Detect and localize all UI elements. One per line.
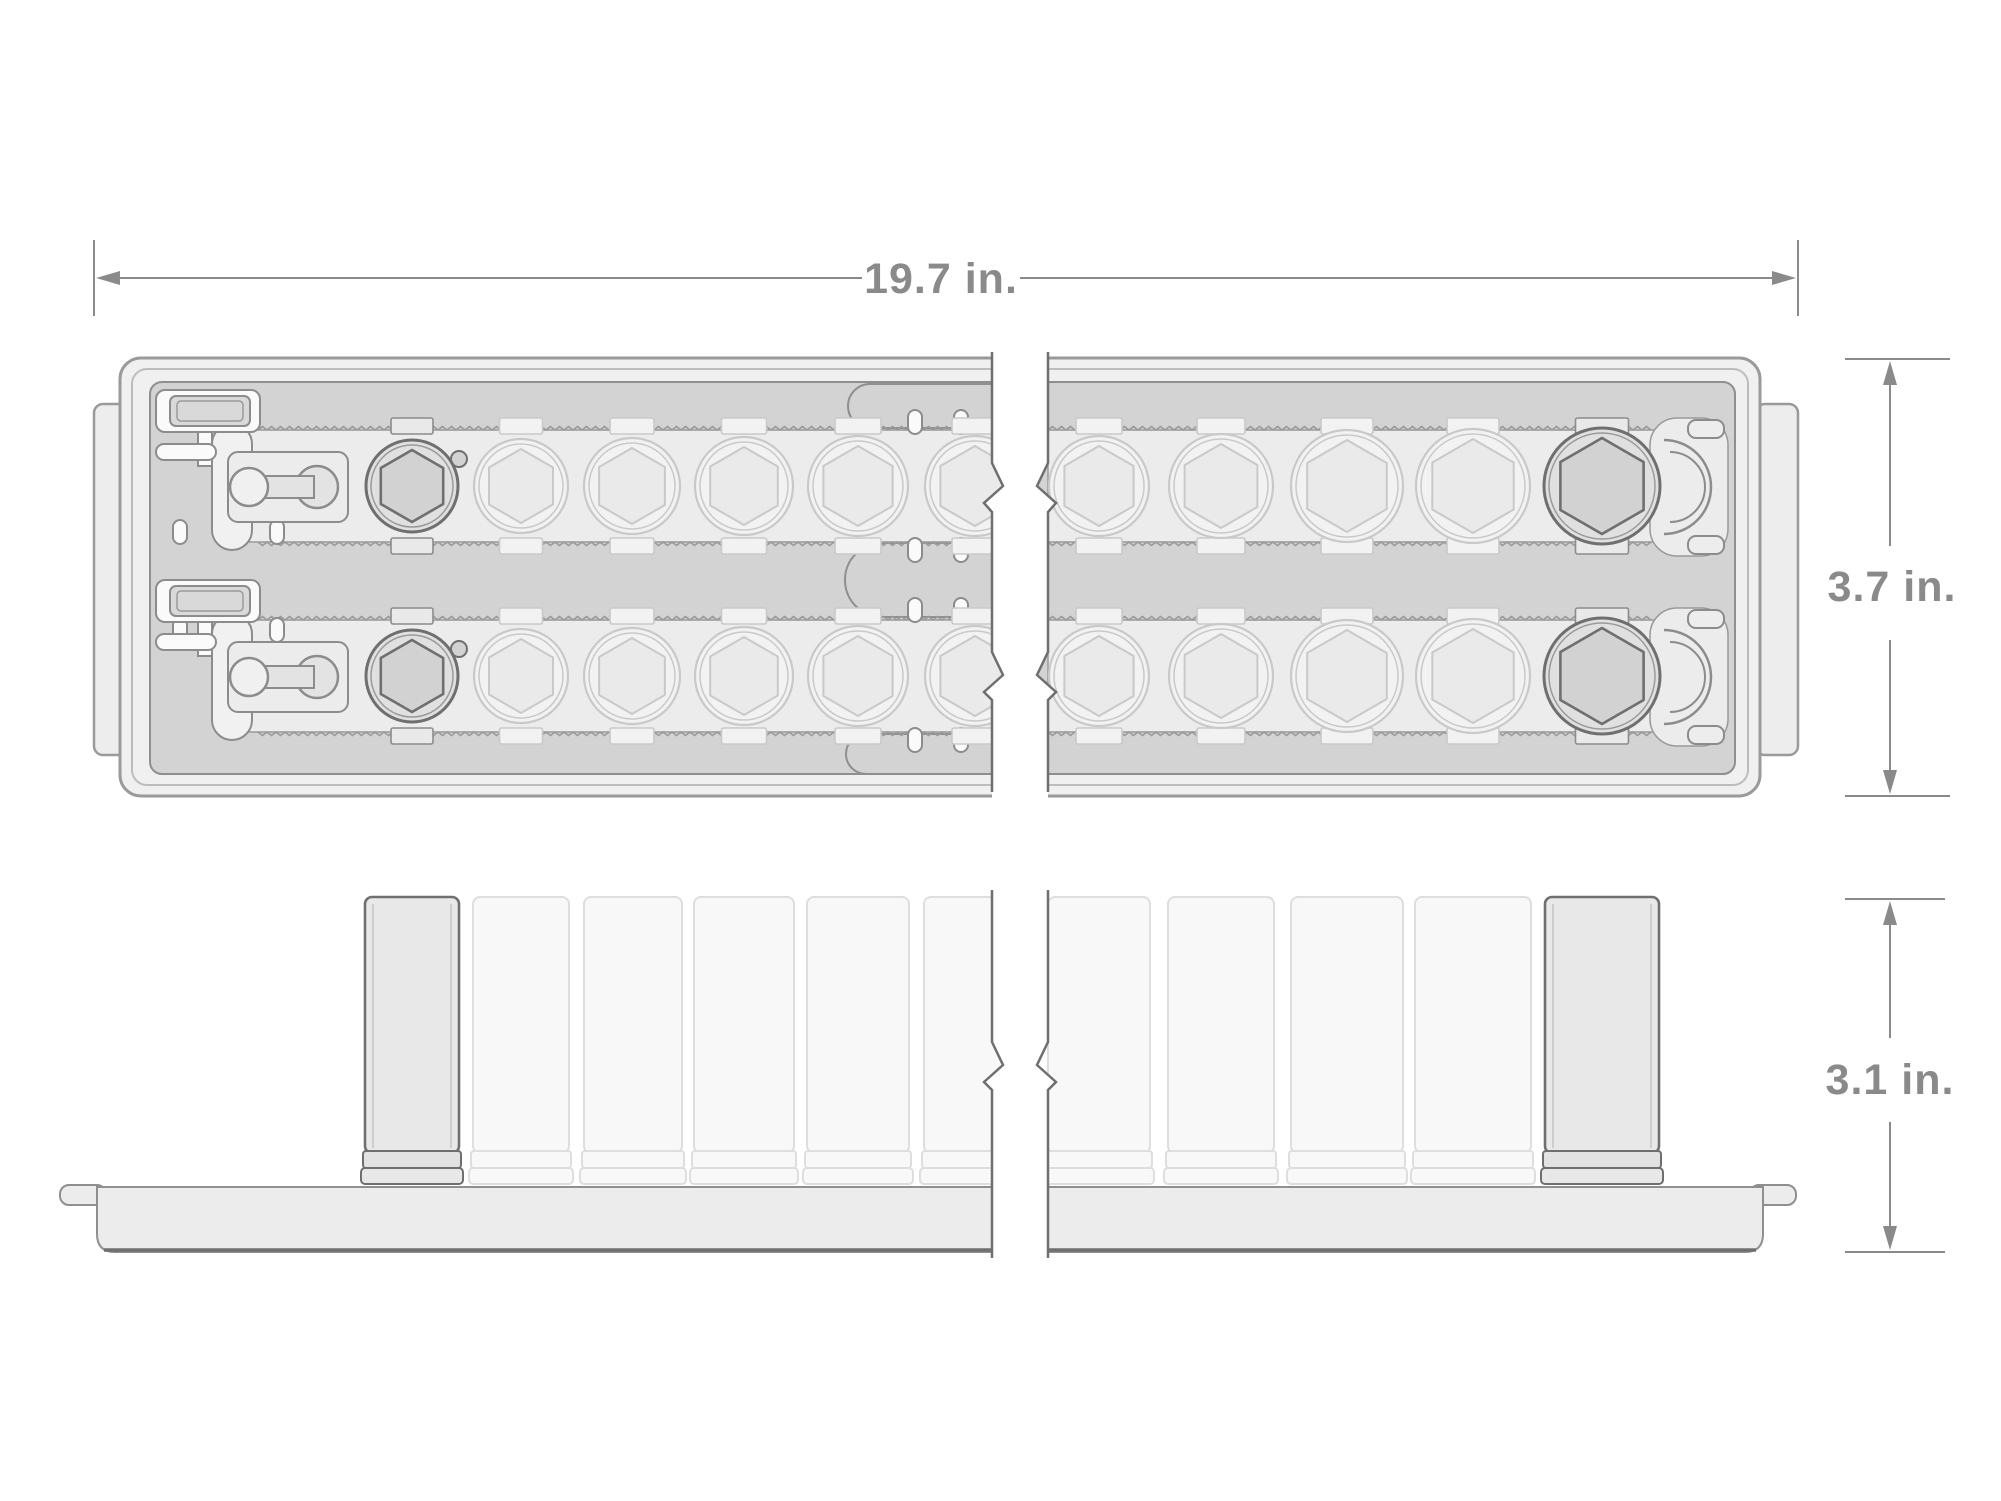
socket-clip <box>500 418 543 434</box>
arrowhead-down-icon <box>1883 770 1897 794</box>
tray-side-view <box>60 884 1796 1262</box>
arrowhead-right-icon <box>1772 271 1796 285</box>
socket-base-ring <box>690 1168 798 1184</box>
diagram-page: 19.7 in. 3.7 in. 3.1 in. <box>0 0 2001 1501</box>
socket-clip <box>391 538 433 554</box>
socket-collar <box>1046 1151 1152 1168</box>
socket-body <box>1048 897 1150 1153</box>
socket-clip <box>1197 538 1245 554</box>
socket-clip <box>1197 728 1245 744</box>
keyhole-small-circle-icon <box>230 658 268 696</box>
socket-body <box>1168 897 1274 1153</box>
socket-clip <box>835 538 881 554</box>
socket-clip <box>610 728 654 744</box>
socket-clip <box>722 608 767 624</box>
arrowhead-up-icon <box>1883 361 1897 385</box>
tray-base-slab <box>97 1187 1763 1252</box>
socket-collar <box>582 1151 684 1168</box>
rail-stud <box>908 728 922 752</box>
socket-clip <box>500 728 543 744</box>
socket-clip <box>722 418 767 434</box>
socket-collar <box>1166 1151 1276 1168</box>
dimension-height: 3.1 in. <box>1826 899 1955 1252</box>
socket-clip <box>500 538 543 554</box>
latch-arm <box>156 444 216 460</box>
socket-clip <box>610 608 654 624</box>
socket-collar <box>471 1151 571 1168</box>
arrowhead-up-icon <box>1883 901 1897 925</box>
socket-side-view-faded <box>1164 897 1278 1184</box>
socket-clip <box>610 538 654 554</box>
rail-stud <box>173 520 187 544</box>
rail-stud <box>270 618 284 642</box>
socket-base-ring <box>1164 1168 1278 1184</box>
socket-body <box>807 897 909 1153</box>
rail-stud <box>908 598 922 622</box>
socket-side-view-faded <box>690 897 798 1184</box>
socket-base-ring <box>1411 1168 1535 1184</box>
socket-collar <box>1289 1151 1405 1168</box>
socket-clip <box>1197 608 1245 624</box>
socket-side-view-dark <box>361 897 463 1184</box>
socket-clip <box>610 418 654 434</box>
tray-top-view <box>94 346 1798 800</box>
socket-clip <box>835 418 881 434</box>
socket-side-view-faded <box>803 897 913 1184</box>
end-cap-tab <box>1688 420 1724 438</box>
socket-collar <box>805 1151 911 1168</box>
socket-base-ring <box>361 1168 463 1184</box>
socket-side-view-dark <box>1541 897 1663 1184</box>
socket-side-view-faded <box>1287 897 1407 1184</box>
socket-base-ring <box>580 1168 686 1184</box>
socket-clip <box>1076 608 1122 624</box>
keyhole-small-circle-icon <box>230 468 268 506</box>
end-cap-tab <box>1688 536 1724 554</box>
depth-dimension-label: 3.7 in. <box>1828 563 1957 611</box>
socket-clip <box>722 538 767 554</box>
socket-body <box>584 897 682 1153</box>
rail-stud <box>908 410 922 434</box>
socket-body <box>1415 897 1531 1153</box>
rail-stud <box>270 520 284 544</box>
socket-side-view-faded <box>469 897 573 1184</box>
socket-base-ring <box>1044 1168 1154 1184</box>
socket-side-view-faded <box>580 897 686 1184</box>
width-dimension-label: 19.7 in. <box>864 255 1018 303</box>
socket-body <box>1545 897 1659 1153</box>
socket-clip <box>835 728 881 744</box>
socket-set-dimension-diagram: 19.7 in. 3.7 in. 3.1 in. <box>0 0 2001 1501</box>
side-view-break-mark <box>984 884 1056 1262</box>
socket-collar <box>1543 1151 1661 1168</box>
socket-clip <box>391 728 433 744</box>
socket-collar <box>1413 1151 1533 1168</box>
socket-clip <box>391 608 433 624</box>
end-cap-tab <box>1688 726 1724 744</box>
latch-arm <box>156 634 216 650</box>
socket-clip <box>1076 538 1122 554</box>
socket-body <box>694 897 794 1153</box>
rail-stud <box>908 538 922 562</box>
dimension-width: 19.7 in. <box>94 240 1798 316</box>
socket-collar <box>692 1151 796 1168</box>
socket-clip <box>835 608 881 624</box>
socket-side-view-faded <box>1044 897 1154 1184</box>
height-dimension-label: 3.1 in. <box>1826 1056 1955 1104</box>
socket-clip <box>722 728 767 744</box>
socket-collar <box>363 1151 461 1168</box>
socket-clip <box>500 608 543 624</box>
socket-base-ring <box>1287 1168 1407 1184</box>
socket-clip <box>1197 418 1245 434</box>
tray-right-tab <box>1756 404 1798 755</box>
socket-clip <box>1076 728 1122 744</box>
socket-clip <box>391 418 433 434</box>
socket-base-ring <box>803 1168 913 1184</box>
socket-base-ring <box>1541 1168 1663 1184</box>
arrowhead-left-icon <box>96 271 120 285</box>
socket-base-ring <box>469 1168 573 1184</box>
end-cap-tab <box>1688 610 1724 628</box>
socket-clip <box>1076 418 1122 434</box>
dimension-depth: 3.7 in. <box>1828 359 1957 796</box>
socket-body <box>365 897 459 1153</box>
socket-side-view-faded <box>1411 897 1535 1184</box>
socket-body <box>1291 897 1403 1153</box>
socket-body <box>473 897 569 1153</box>
top-view-break-mark <box>984 346 1056 800</box>
arrowhead-down-icon <box>1883 1226 1897 1250</box>
